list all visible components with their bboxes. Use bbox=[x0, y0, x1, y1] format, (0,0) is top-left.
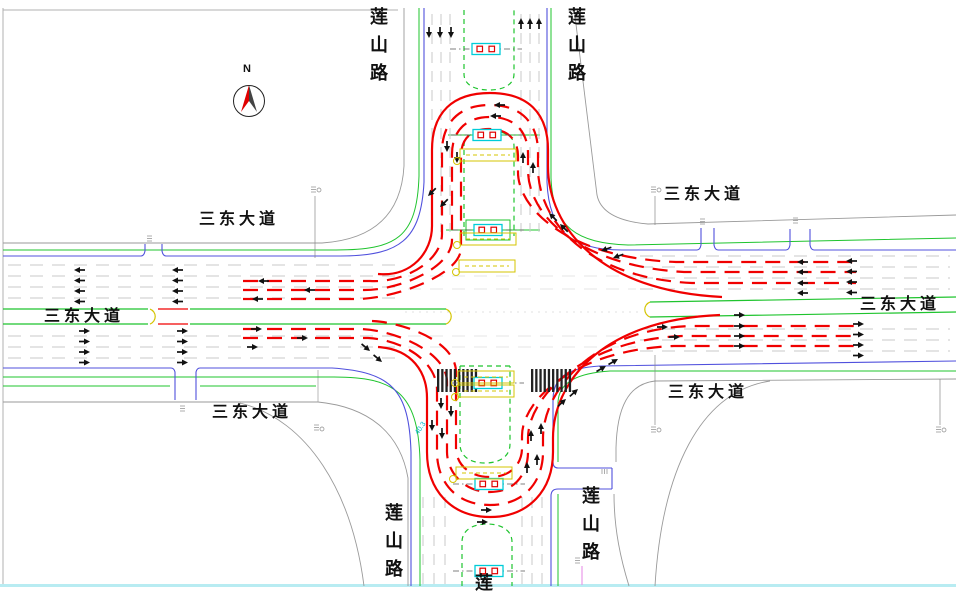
road-label-sandong-southwest: 三东大道 bbox=[212, 405, 292, 421]
sidewalk-edges bbox=[3, 8, 956, 586]
road-label-lianshan-south-right: 莲山路 bbox=[581, 486, 599, 570]
plan-linework bbox=[0, 0, 956, 591]
compass-north-label: N bbox=[243, 64, 251, 75]
road-label-lianshan-north-left: 莲山路 bbox=[369, 7, 387, 91]
curb-lines bbox=[3, 8, 956, 586]
road-label-sandong-northeast: 三东大道 bbox=[664, 187, 744, 203]
central-median bbox=[3, 297, 956, 324]
road-label-sandong-west: 三东大道 bbox=[44, 309, 124, 325]
traffic-plan-drawing: N 三东大道 三东大道 三东大道 三东大道 三东大道 三东大道 莲山路 莲山路 … bbox=[0, 0, 956, 591]
north-compass-icon bbox=[234, 85, 265, 117]
green-edge-lines bbox=[3, 8, 956, 586]
uturn-guidance-paths bbox=[243, 93, 856, 517]
signal-head-symbols bbox=[450, 44, 525, 577]
road-label-lianshan-north-right: 莲山路 bbox=[567, 7, 585, 91]
road-label-sandong-east: 三东大道 bbox=[860, 297, 940, 313]
road-label-lianshan-south-partial: 莲 bbox=[474, 573, 492, 591]
road-label-sandong-southeast: 三东大道 bbox=[668, 385, 748, 401]
road-label-lianshan-south-left: 莲山路 bbox=[384, 503, 402, 587]
road-label-sandong-northwest: 三东大道 bbox=[199, 212, 279, 228]
